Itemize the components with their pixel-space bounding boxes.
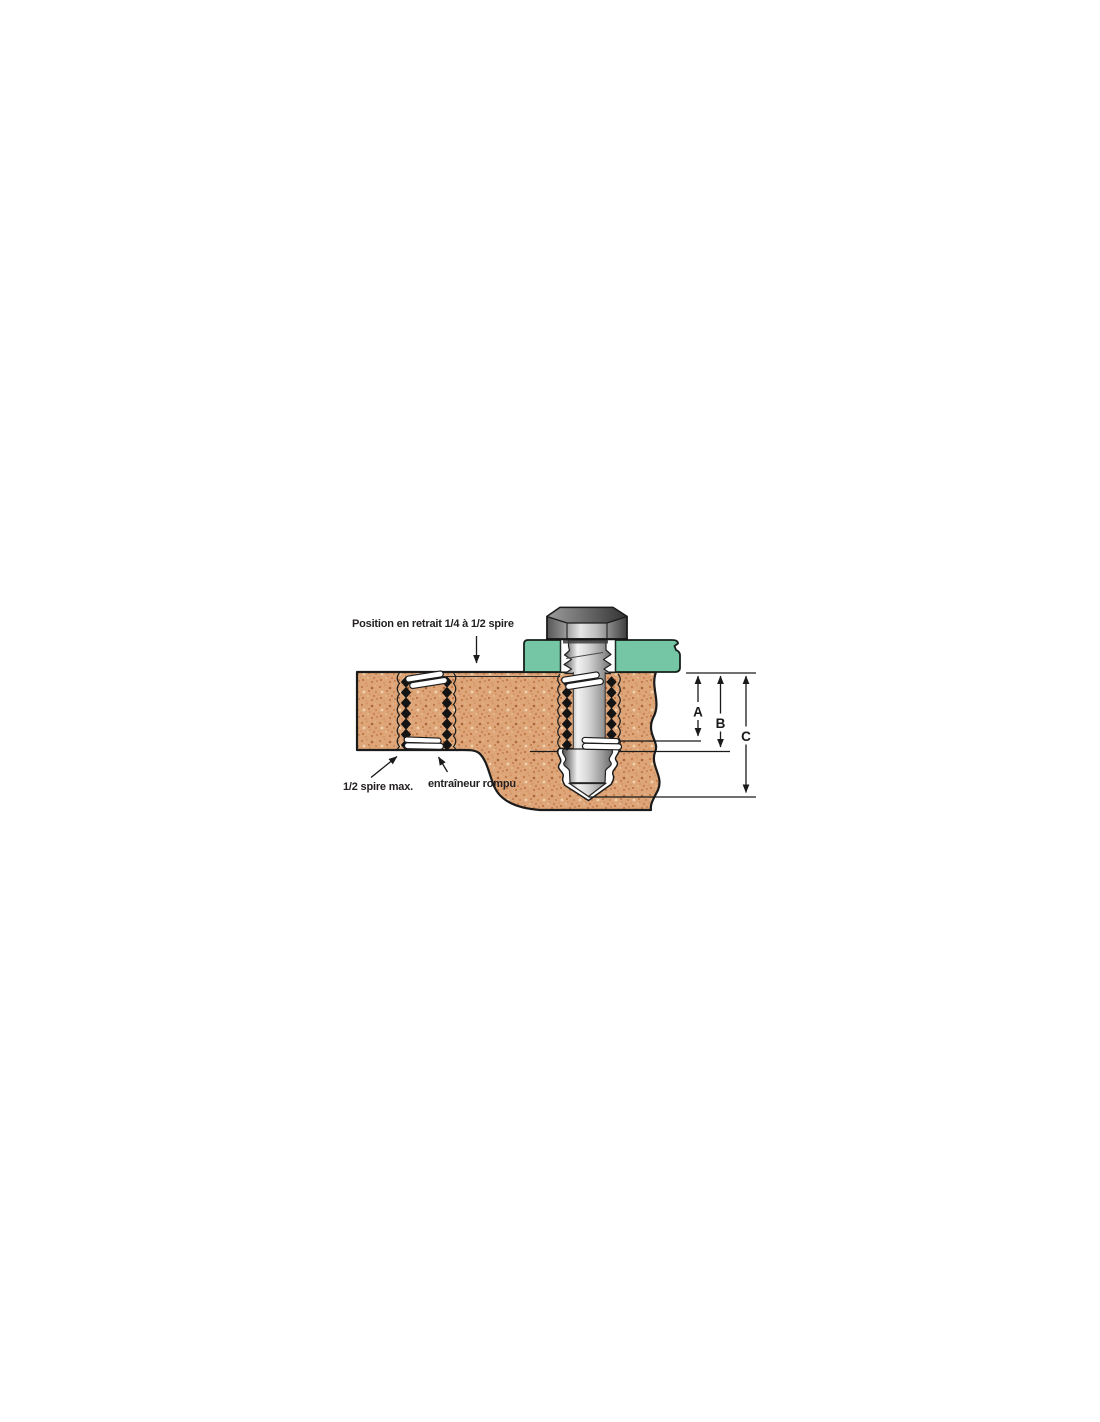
callout-entraineur-arrow xyxy=(439,757,448,772)
hex-head-top-face xyxy=(547,608,627,624)
dim-b-label: B xyxy=(716,716,726,731)
insert-installation-diagram: A B C Position en retrait 1/4 à 1/2 spir… xyxy=(0,0,1100,1422)
callout-demi-spire-arrow xyxy=(371,757,397,778)
product-technical-diagram-page: A B C Position en retrait 1/4 à 1/2 spir… xyxy=(0,0,1100,1422)
callout-position-retrait: Position en retrait 1/4 à 1/2 spire xyxy=(352,618,514,630)
dim-c-label: C xyxy=(741,729,751,744)
bolt-thread-runout xyxy=(562,749,612,783)
insert-tang-broken xyxy=(404,737,443,750)
bolt-shank-upper xyxy=(564,640,611,674)
callout-entraineur: entraîneur rompu xyxy=(428,778,516,790)
insert-tang-broken xyxy=(582,737,621,750)
under-head-shadow xyxy=(563,640,608,644)
callout-demi-spire: 1/2 spire max. xyxy=(343,781,413,793)
dim-a-label: A xyxy=(693,705,703,720)
